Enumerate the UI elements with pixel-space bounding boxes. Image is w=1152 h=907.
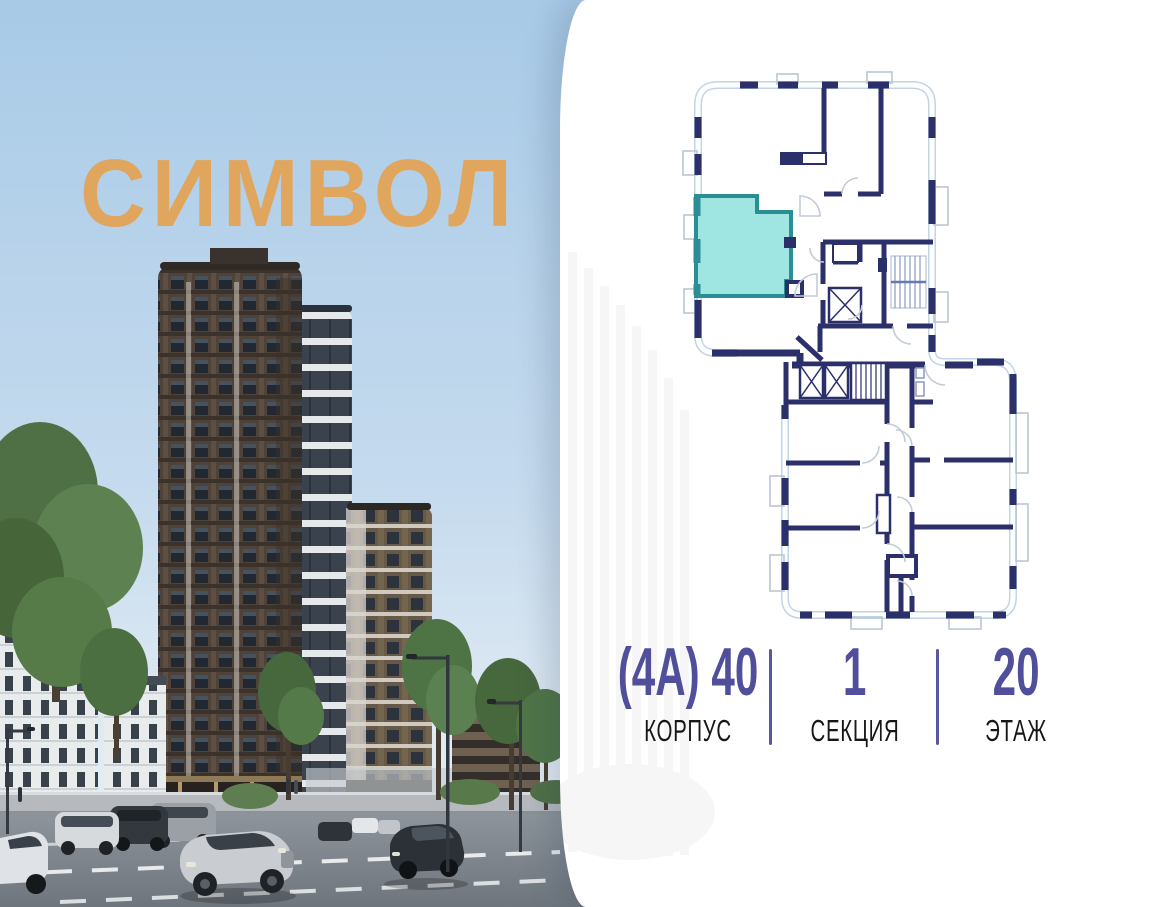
elevator-icon <box>800 288 886 400</box>
building-value: (4А) 40 <box>618 640 759 705</box>
info-divider <box>769 649 772 745</box>
info-divider <box>936 649 939 745</box>
info-building: (4А) 40 КОРПУС <box>575 640 802 749</box>
floor-value: 20 <box>993 640 1040 705</box>
wall-stub <box>784 237 796 248</box>
building-label: КОРПУС <box>613 713 763 749</box>
selected-apartment[interactable] <box>696 196 791 296</box>
selected-apartment-group <box>696 196 802 296</box>
info-floor: 20 ЭТАЖ <box>969 640 1063 749</box>
section-label: СЕКЦИЯ <box>811 713 900 749</box>
info-section: 1 СЕКЦИЯ <box>788 640 923 749</box>
page: СИМВОЛ <box>0 0 1152 907</box>
stairs-icon <box>891 256 926 308</box>
floor-plan <box>0 0 1152 907</box>
section-value: 1 <box>843 640 866 705</box>
floor-label: ЭТАЖ <box>985 713 1047 749</box>
